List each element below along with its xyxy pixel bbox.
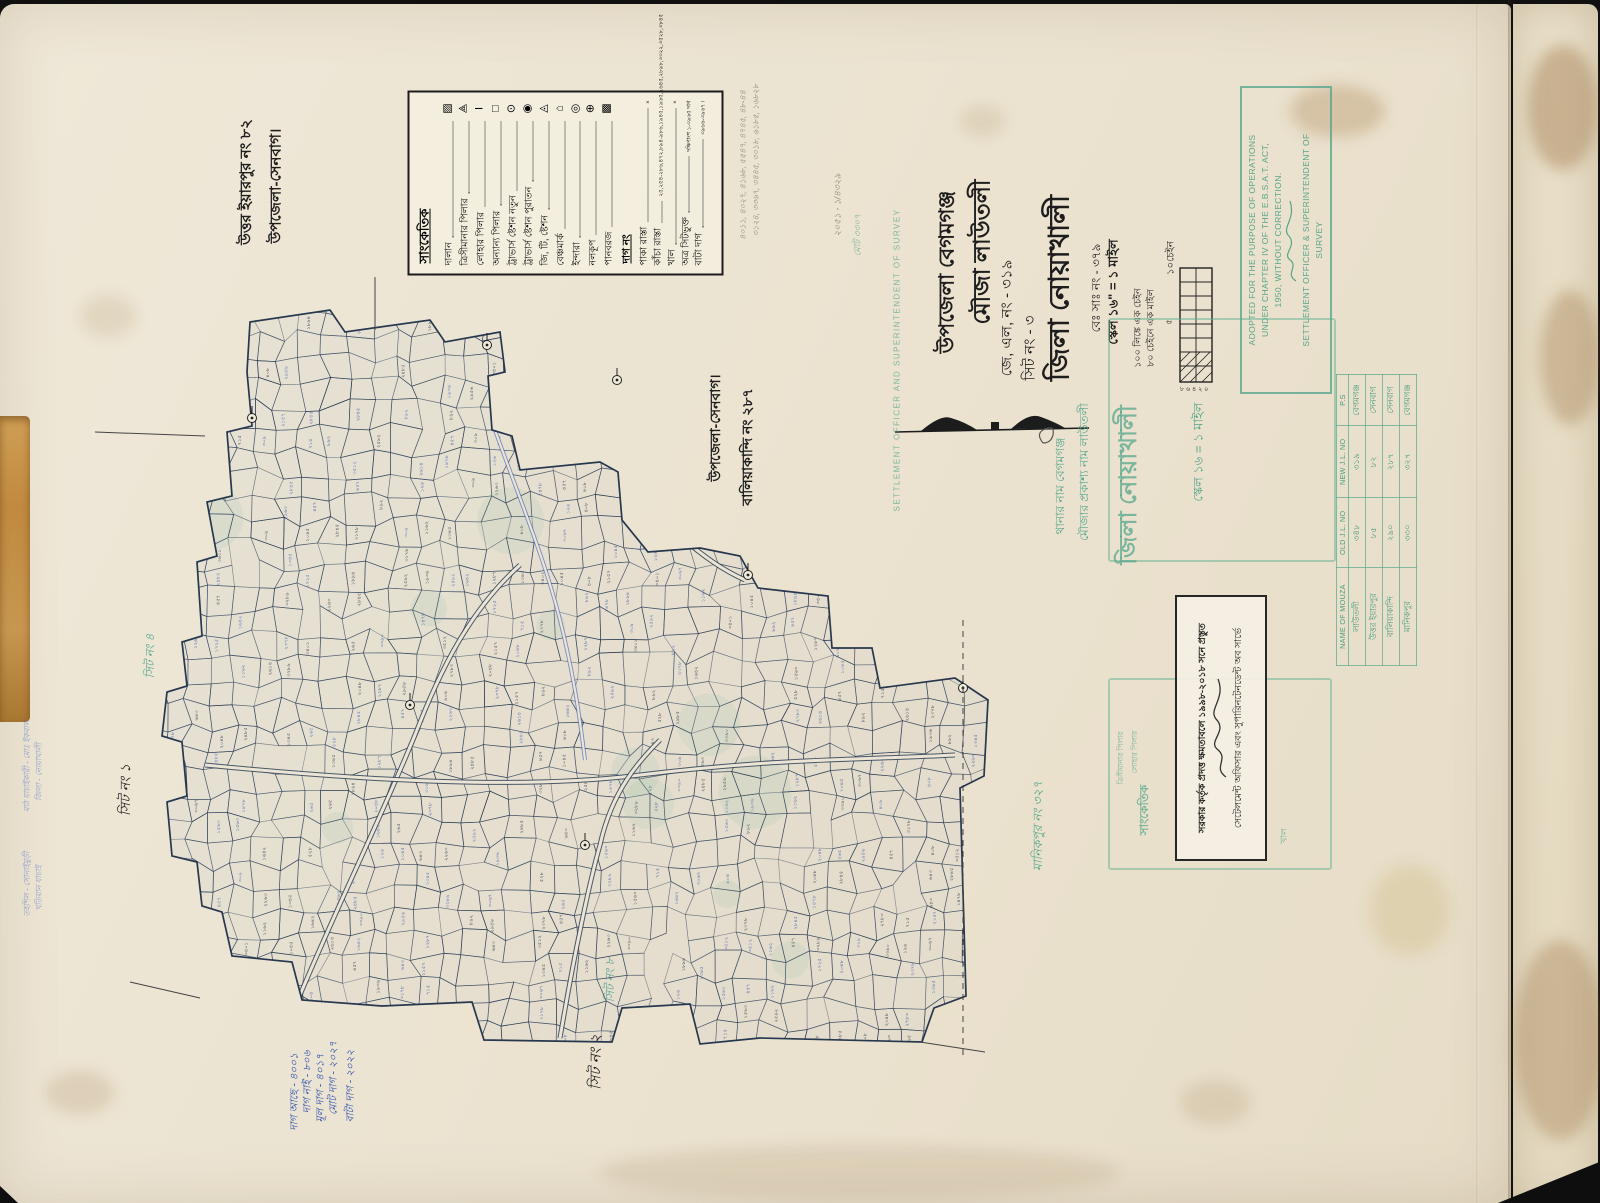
svg-text:২৮৪৫: ২৮৪৫ [839,871,845,884]
svg-text:৬৪৩: ৬৪৩ [285,986,291,997]
svg-text:৩০৯: ৩০৯ [856,938,862,948]
svg-text:৯০৪: ৯০৪ [267,1010,273,1020]
svg-text:২৫৯২: ২৫৯২ [791,523,797,536]
svg-text:৪৫৭: ৪৫৭ [147,638,153,648]
svg-text:৭১৫: ৭১৫ [210,484,216,494]
svg-text:৩৩৯০: ৩৩৯০ [543,384,549,398]
svg-text:২৬৫: ২৬৫ [910,367,916,377]
tape-strip [0,416,30,722]
svg-text:১৭২৫: ১৭২৫ [812,365,818,378]
svg-text:১৬৪২: ১৬৪২ [693,666,699,679]
svg-text:৮৯২: ৮৯২ [947,734,953,744]
svg-text:৩৩৯০: ৩৩৯০ [701,343,707,357]
svg-text:৩১৭৮: ৩১৭৮ [354,526,360,540]
legend-item: ট্রাভার্স ষ্টেশন নতুন ⊙ [504,101,520,266]
svg-text:২৯৫৬: ২৯৫৬ [284,366,290,380]
svg-text:১২৮৭: ১২৮৭ [425,935,431,948]
table-cell: সেনবাগ [1366,375,1383,426]
svg-text:৯০৪: ৯০৪ [376,1011,382,1021]
legend-item-label: বাটা দাগ [693,233,707,266]
legend-item: বেঞ্চমার্ক ⌂ [552,101,568,266]
svg-text:৪৫৭: ৪৫৭ [790,617,796,627]
svg-text:২৯৫৬: ২৯৫৬ [838,479,844,493]
svg-text:৭১৫: ৭১৫ [448,319,454,329]
svg-text:৩৩৯০: ৩৩৯০ [839,552,845,566]
svg-text:১৩৪৫: ১৩৪৫ [520,570,526,583]
svg-text:১৫৬৩: ১৫৬৩ [721,986,727,1000]
svg-text:৩৩৯০: ৩৩৯০ [626,937,632,951]
svg-text:২৪৮৫: ২৪৮৫ [837,1030,843,1043]
svg-text:৬৪৩: ৬৪৩ [194,710,200,721]
svg-text:৩০৯: ৩০৯ [237,872,243,882]
svg-text:৫২৮: ৫২৮ [331,736,337,747]
svg-text:৩৫১২: ৩৫১২ [724,937,730,950]
svg-text:৩২৮৯: ৩২৮৯ [607,873,613,886]
svg-text:৩৫১২: ৩৫১২ [955,849,961,862]
svg-text:৩৪০১: ৩৪০১ [952,549,958,562]
svg-text:১৪৭৮: ১৪৭৮ [997,848,1003,862]
svg-text:৩০৯: ৩০৯ [261,436,267,446]
svg-text:২৪৮৫: ২৪৮৫ [399,1076,405,1080]
svg-text:৩৪০১: ৩৪০১ [971,966,977,979]
svg-text:২২৬৩: ২২৬৩ [443,847,449,861]
svg-text:৮৯২: ৮৯২ [587,666,593,676]
fold-crease [1508,0,1513,1203]
svg-text:৮৯২: ৮৯২ [750,461,756,471]
svg-text:১৬৪২: ১৬৪২ [262,847,268,860]
svg-text:৩০৬৭: ৩০৬৭ [539,986,545,1000]
pencil-note-2: ৩১২৪, ৩৩৬৭, ৩৪৪৫, ৩০১৮, ৬১৮৫, ১৬৮২৮ [751,84,764,236]
svg-text:১৪৭৮: ১৪৭৮ [538,482,544,496]
svg-text:৩৩৯০: ৩৩৯০ [497,316,503,330]
svg-text:৭১৫: ৭১৫ [308,439,314,449]
building-hatched-rect-icon: ▨ [441,101,457,117]
svg-text:৮৯২: ৮৯২ [927,436,933,446]
svg-text:১২৮৭: ১২৮৭ [792,340,798,353]
svg-text:৮৯২: ৮৯২ [449,410,455,420]
table-row: মানিকপুর৩৩০৩২৭বেগমগঞ্জ [1400,375,1417,666]
svg-text:১২৬: ১২৬ [608,302,614,313]
svg-text:২৬৫: ২৬৫ [194,527,200,537]
legend-item: পানবরজ ▩ [600,101,616,266]
svg-text:৪৫৭: ৪৫৭ [976,920,982,930]
green-legend-title: সাংকেতিক [1136,785,1156,836]
svg-text:১২৬: ১২৬ [676,989,682,1000]
svg-text:২২৬৩: ২২৬৩ [762,1053,768,1067]
svg-text:২৩৭৮: ২৩৭৮ [149,1008,155,1022]
svg-text:১৭২৫: ১৭২৫ [168,453,174,466]
svg-text:২৮৪৫: ২৮৪৫ [356,408,362,421]
svg-text:১০৪৫: ১০৪৫ [400,847,406,860]
svg-text:২৪৮৫: ২৪৮৫ [216,573,222,586]
svg-text:২৪৮৫: ২৪৮৫ [400,364,406,377]
svg-text:৬৪৩: ৬৪৩ [928,869,934,880]
svg-text:১৮৯৪: ১৮৯৪ [351,572,357,585]
table-cell: ৩২৭ [1400,426,1417,498]
svg-text:২৬১৪: ২৬১৪ [170,1028,176,1041]
svg-text:৬৪৩: ৬৪৩ [491,940,497,951]
svg-text:২২৬৩: ২২৬৩ [605,383,611,397]
svg-text:৪০৮: ৪০৮ [148,801,154,812]
svg-text:৩৫১২: ৩৫১২ [927,1075,933,1080]
traverse-station-old-icon: ◉ [520,101,536,117]
svg-text:৫২৮: ৫২৮ [926,1057,932,1068]
legend-item: ট্রাভার্স ষ্টেশন পুরাতন ◉ [520,101,536,266]
svg-text:২৩৭৮: ২৩৭৮ [446,1030,452,1044]
svg-text:২২৬৩: ২২৬৩ [403,1033,409,1047]
svg-text:২৬১৪: ২৬১৪ [582,1059,588,1072]
stamp-line: SETTLEMENT OFFICER & SUPERINTENDENT OF [1300,133,1313,346]
legend-road-item: বাটা দাগ ৩৯৬৬-৩৯৬৭ । [693,101,707,266]
svg-text:১৩৪৫: ১৩৪৫ [331,754,337,767]
stamp-line: 1950, WITHOUT CORRECTION. [1272,173,1285,308]
dotted-leader [548,122,549,210]
svg-text:৩০৬৭: ৩০৬৭ [857,774,863,788]
signature-squiggle [1210,673,1232,783]
svg-text:৯০৪: ৯০৪ [626,1011,632,1021]
legend-dag-header: দাগ নং [620,101,637,264]
svg-text:১৩৪৫: ১৩৪৫ [287,553,293,566]
svg-text:৮৯২: ৮৯২ [651,690,657,700]
svg-text:২৩৭৮: ২৩৭৮ [885,455,891,469]
svg-text:১৬৪২: ১৬৪২ [356,937,362,950]
svg-text:২৭৮৩: ২৭৮৩ [449,663,455,677]
thana-stamp-line1: থানার নাম বেগমগঞ্জ [1052,438,1072,535]
iron-pillar-icon: I [472,101,488,117]
svg-text:২০৪৮: ২০৪৮ [219,734,225,748]
scanned-map-sheet: সাংকেতিক দালান ▨ত্রিসীমানার পিলার ⟁লোহার… [0,0,1600,1203]
svg-text:৮৯২: ৮৯২ [771,622,777,632]
svg-text:২৪৮৫: ২৪৮৫ [516,436,522,449]
svg-text:১১৬২: ১১৬২ [424,521,430,534]
svg-text:১২৬: ১২৬ [193,638,199,649]
svg-text:১৫৬৩: ১৫৬৩ [743,1004,749,1018]
svg-text:২১৫৭: ২১৫৭ [421,962,427,975]
svg-text:৫২৮: ৫২৮ [149,940,155,951]
svg-text:৩০৬৭: ৩০৬৭ [487,894,493,908]
svg-text:৬৪৩: ৬৪৩ [564,828,570,839]
svg-text:২৬১৪: ২৬১৪ [561,432,567,445]
svg-text:১১৬২: ১১৬২ [769,985,775,998]
svg-text:৮৯২: ৮৯২ [215,1030,221,1040]
svg-text:২৯৫৬: ২৯৫৬ [400,911,406,925]
svg-text:২০৪৮: ২০৪৮ [817,847,823,861]
svg-text:৩৩৯০: ৩৩৯০ [379,634,385,648]
svg-text:২৬৫: ২৬৫ [351,641,357,651]
table-cell: লাউতলী [1349,568,1366,666]
svg-text:১২৬: ১২৬ [903,943,909,954]
traverse-station-new-icon: ⊙ [504,101,520,117]
authority-stamp-box: সরকার কর্তৃক প্রদত্ত ক্ষমতাবলে ১৯৯৮-২০১৮… [1175,595,1267,861]
svg-text:৩২৮৯: ৩২৮৯ [350,1059,356,1072]
table-cell: সেনবাগ [1383,375,1400,426]
svg-text:১৮৯৪: ১৮৯৪ [792,592,798,605]
svg-text:২১৫৭: ২১৫৭ [837,405,843,418]
svg-text:৪০৮: ৪০৮ [582,481,588,492]
legend-item-value: × [645,101,651,104]
svg-text:১৬৪২: ১৬৪২ [862,574,868,587]
svg-text:২৩৭৮: ২৩৭৮ [427,802,433,816]
svg-text:৬৪৩: ৬৪৩ [418,850,424,861]
svg-text:৭১৫: ৭১৫ [655,868,661,878]
svg-text:২২৬৩: ২২৬৩ [448,707,454,721]
svg-text:৩৩৯০: ৩৩৯০ [976,1077,982,1080]
svg-text:২৯৫৬: ২৯৫৬ [861,848,867,862]
svg-text:৬৪৩: ৬৪৩ [145,992,151,1003]
svg-text:৪০৮: ৪০৮ [1000,387,1005,398]
svg-text:১৯৩৬: ১৯৩৬ [928,728,934,742]
svg-text:১৩৪৫: ১৩৪৫ [930,1030,936,1043]
tri-junction-pillar-icon: ⟁ [456,101,472,117]
table-cell: ২৯০ [1383,498,1400,568]
svg-text:১৩৪৫: ১৩৪৫ [286,733,292,746]
legend-item-label: ত্রিসীমানার পিলার [459,198,473,265]
svg-text:৪০৮: ৪০৮ [424,1034,430,1045]
svg-text:২৫৯২: ২৫৯২ [841,362,847,375]
svg-text:৩০৯: ৩০৯ [588,365,594,375]
svg-text:১৩৪৫: ১৩৪৫ [699,966,705,979]
svg-text:৩০৯: ৩০৯ [264,531,270,541]
svg-text:২৮৪৫: ২৮৪৫ [907,316,913,329]
svg-text:১৩৪৫: ১৩৪৫ [425,872,431,885]
svg-text:২৩৭৮: ২৩৭৮ [541,916,547,930]
svg-text:২৮৪৫: ২৮৪৫ [356,711,362,724]
svg-text:১০৪৫: ১০৪৫ [289,941,295,954]
svg-text:২৪৮৫: ২৪৮৫ [470,756,476,769]
svg-text:৩৫১২: ৩৫১২ [467,1027,473,1040]
svg-text:২৯৫৬: ২৯৫৬ [263,296,269,310]
legend-item-value: দক্ষিণাংশ ১-৩৯৬৫ দাগ [686,101,692,152]
neighbor-north-sub: উপজেলা-সেনবাগ। [265,129,290,244]
svg-text:৩০৬৭: ৩০৬৭ [473,1077,479,1080]
legend-road-item: খাল × [665,101,679,266]
svg-text:১৬৪২: ১৬৪২ [238,616,244,629]
svg-text:১১৬২: ১১৬২ [333,1057,339,1070]
svg-text:৩০৯: ৩০৯ [470,478,476,488]
svg-text:৭১৫: ৭১৫ [237,435,243,445]
svg-text:১৬৪২: ১৬৪২ [629,406,635,419]
svg-text:১২৮৭: ১২৮৭ [492,571,498,584]
svg-text:২৯৫৬: ২৯৫৬ [580,321,586,335]
svg-text:১৯৩৬: ১৯৩৬ [837,338,843,352]
svg-text:৪৫৭: ৪৫৭ [559,914,565,924]
svg-text:৯০৪: ৯০৪ [773,440,779,450]
svg-text:৩৫১২: ৩৫১২ [537,935,543,948]
svg-text:৮৯২: ৮৯২ [357,323,363,333]
signature-squiggle [1284,195,1300,285]
svg-text:৪৫৭: ৪৫৭ [906,644,912,654]
svg-text:২৬১৪: ২৬১৪ [516,712,522,725]
svg-text:২৩৭৮: ২৩৭৮ [743,917,749,931]
svg-text:৩৫১২: ৩৫১২ [747,939,753,952]
legend-road-item: অত্র সিটভুক্ত দক্ষিণাংশ ১-৩৯৬৫ দাগ [679,101,693,266]
table-cell: বালিয়াকান্দি [1383,568,1400,666]
svg-text:২১৫৭: ২১৫৭ [811,505,817,518]
svg-text:১১৬২: ১১৬২ [240,665,246,678]
legend-box: সাংকেতিক দালান ▨ত্রিসীমানার পিলার ⟁লোহার… [408,91,724,276]
svg-text:৩০৯: ৩০৯ [473,433,479,443]
svg-text:২১৫৭: ২১৫৭ [514,691,520,704]
svg-text:১৯৩৬: ১৯৩৬ [834,498,840,512]
svg-text:৩৪০১: ৩৪০১ [727,616,733,629]
stamp-line: SURVEY [1313,221,1326,258]
svg-text:৭১৫: ৭১৫ [558,962,564,972]
svg-text:১৮৯৪: ১৮৯৪ [886,404,892,417]
svg-text:১২৬: ১২৬ [566,503,572,514]
svg-text:১৪৭৮: ১৪৭৮ [769,321,775,335]
svg-text:৫২৮: ৫২৮ [976,1030,982,1041]
table-cell: ৮২ [1366,426,1383,498]
svg-text:২৪৮৫: ২৪৮৫ [353,896,359,909]
svg-text:২৪৮৫: ২৪৮৫ [979,851,985,864]
svg-text:২৮৪৫: ২৮৪৫ [289,481,295,494]
legend-item-value: ৩৯৬৬-৩৯৬৭ । [700,101,706,136]
svg-text:২৬৫: ২৬৫ [396,823,402,833]
svg-text:১১৬২: ১১৬২ [262,922,268,935]
svg-text:২৬৫: ২৬৫ [561,899,567,909]
svg-text:৩০৯: ৩০৯ [214,938,220,948]
svg-text:১৭২৫: ১৭২৫ [214,639,220,652]
legend-item-label: কাঁচা রাস্তা [652,228,666,266]
paper-edge-strip [1513,4,1598,1203]
svg-text:১৬৪২: ১৬৪২ [173,663,179,676]
svg-text:২০৪৮: ২০৪৮ [373,799,379,813]
svg-text:২৩৭৮: ২৩৭৮ [494,685,500,699]
svg-text:১৩৪৫: ১৩৪৫ [146,667,152,680]
legend-item-label: ট্রাভার্স ষ্টেশন নতুন [506,195,520,265]
table-row: লাউতলী৩৪৮৩১৯বেগমগঞ্জ [1349,375,1366,666]
svg-text:১২৮৭: ১২৮৭ [813,637,819,650]
svg-text:১৮৯৪: ১৮৯৪ [172,1059,178,1072]
stamp-line: UNDER CHAPTER IV OF THE E.B.S.A.T. ACT, [1259,143,1272,337]
svg-text:১৯৩৬: ১৯৩৬ [424,570,430,584]
svg-text:১৩৪৫: ১৩৪৫ [973,734,979,747]
dotted-leader [564,122,565,229]
svg-text:১২৮৭: ১২৮৭ [377,755,383,768]
svg-text:৩১৭৮: ৩১৭৮ [841,315,847,329]
svg-text:১২৮৭: ১২৮৭ [996,571,1002,584]
legend-road-item: কাঁচা রাস্তা ২৫,২৫৪-২৮৬,৪৭২,৮৯৪-৯৮৬,১৯৪৫… [652,101,666,266]
svg-text:৯০৪: ৯০৪ [584,409,590,419]
svg-text:১৬৪২: ১৬৪২ [674,891,680,904]
svg-text:২৪৮৫: ২৪৮৫ [519,820,525,833]
authority-line2: সেটেলমেন্ট অফিসার এবং সুপারিনটেনডেন্ট অব… [1232,628,1246,828]
svg-text:২৩৭৮: ২৩৭৮ [191,342,197,356]
table-cell: বেগমগঞ্জ [1349,375,1366,426]
dotted-leader [661,202,662,224]
svg-text:২৮৪৫: ২৮৪৫ [356,593,362,606]
svg-text:২৮৪৫: ২৮৪৫ [793,916,799,929]
dotted-leader [516,122,517,191]
svg-text:৭১৫: ৭১৫ [722,1029,728,1039]
svg-text:১৫৬৩: ১৫৬৩ [235,817,241,831]
svg-text:৭১৫: ৭১৫ [520,621,526,631]
svg-text:১৫৬৩: ১৫৬৩ [405,297,411,311]
pencil-note-1: ৪০১১, ৪০২৭, ৪১৬৮, ৫৫৪৭, ৪৭৪৫, ৪৮-৪৪ [738,90,751,240]
svg-text:১২৮৭: ১২৮৭ [583,637,589,650]
svg-text:৮৯২: ৮৯২ [170,345,176,355]
svg-text:৫২৮: ৫২৮ [656,433,662,444]
svg-text:৬৪৩: ৬৪৩ [699,433,705,444]
svg-text:৪৫৭: ৪৫৭ [561,480,567,490]
svg-text:২৫৯২: ২৫৯২ [625,338,631,351]
dotted-leader [532,122,533,182]
svg-text:১৩৪৫: ১৩৪৫ [811,478,817,491]
svg-text:৩০৬৭: ৩০৬৭ [562,529,568,543]
svg-text:২৬১৪: ২৬১৪ [905,414,911,427]
svg-text:৪৫৭: ৪৫৭ [216,595,222,605]
mouza-table-header: P.S [1337,375,1349,426]
dotted-leader [689,157,690,213]
svg-text:৩৪০১: ৩৪০১ [314,1032,320,1045]
svg-text:২০৪৮: ২০৪৮ [633,455,639,469]
svg-text:১৭২৫: ১৭২৫ [492,600,498,613]
svg-text:৯০৪: ৯০৪ [146,828,152,838]
table-cell: ২৮৭ [1383,426,1400,498]
svg-text:৪০৮: ৪০৮ [516,365,522,376]
svg-text:২০৪৮: ২০৪৮ [488,663,494,677]
legend-title: সাংকেতিক [416,101,437,264]
svg-text:১৫৬৩: ১৫৬৩ [144,458,150,472]
legend-items: দালান ▨ত্রিসীমানার পিলার ⟁লোহার পিলার Iঅ… [441,101,616,266]
svg-text:১০৪৫: ১০৪৫ [559,572,565,585]
svg-text:৩০৯: ৩০৯ [972,344,978,354]
svg-text:২৩৭৮: ২৩৭৮ [885,522,891,536]
svg-text:৪০৮: ৪০৮ [878,799,884,810]
svg-text:২০৪৮: ২০৪৮ [812,869,818,883]
svg-text:২০৪৮: ২০৪৮ [839,960,845,974]
legend-item: ত্রিসীমানার পিলার ⟁ [456,101,472,266]
gt-station-icon: ◬ [536,101,552,117]
svg-text:১০৪৫: ১০৪৫ [562,754,568,767]
svg-text:৫২৮: ৫২৮ [308,846,314,857]
svg-text:৩৩৯০: ৩৩৯০ [168,321,174,335]
svg-text:২১৫৭: ২১৫৭ [281,413,287,426]
svg-text:৫২৮: ৫২৮ [539,871,545,882]
svg-text:১০৪৫: ১০৪৫ [613,545,619,558]
svg-text:৩৩৯০: ৩৩৯০ [396,1049,402,1063]
svg-text:১০৪৫: ১০৪৫ [749,595,755,608]
svg-text:২৬১৪: ২৬১৪ [902,461,908,474]
svg-text:১২৬: ১২৬ [379,848,385,859]
svg-text:১৩৪৫: ১৩৪৫ [770,1077,776,1080]
thana-stamp-line2: মৌজার প্রকাশ্য নাম লাউতলী [1076,403,1096,541]
svg-text:২৮৪৫: ২৮৪৫ [1002,727,1005,740]
svg-text:১৫৬৩: ১৫৬৩ [794,666,800,680]
svg-text:৮৯২: ৮৯২ [326,436,332,446]
svg-text:৮৯২: ৮৯২ [763,295,769,305]
svg-text:৩৩৯০: ৩৩৯০ [358,913,364,927]
svg-text:৪৫৭: ৪৫৭ [400,709,406,719]
thana-stamp-scale: স্কেল ১৬ = ১ মাইল [1190,402,1211,501]
svg-text:১৬৪২: ১৬৪২ [565,704,571,717]
mouza-table-header: OLD J.L. NO [1337,498,1349,568]
svg-text:৩৪০১: ৩৪০১ [816,591,822,604]
svg-text:৪০৮: ৪০৮ [979,324,985,335]
svg-text:২৫৯২: ২৫৯২ [610,686,616,699]
svg-text:১২৬: ১২৬ [420,481,426,492]
svg-text:৩০৯: ৩০৯ [677,757,683,767]
svg-text:১৮৯৪: ১৮৯৪ [448,759,454,772]
svg-text:২৪৮৫: ২৪৮৫ [700,778,706,791]
svg-text:৩৩৯০: ৩৩৯০ [610,362,616,376]
svg-text:২৯৫৬: ২৯৫৬ [489,918,495,932]
svg-text:২৬৫: ২৬৫ [309,802,315,812]
svg-text:৪০৮: ৪০৮ [583,502,589,513]
svg-text:৩০৬৭: ৩০৬৭ [927,937,933,951]
svg-text:১২৮৭: ১২৮৭ [795,774,801,787]
svg-text:২৫৯২: ২৫৯২ [376,434,382,447]
